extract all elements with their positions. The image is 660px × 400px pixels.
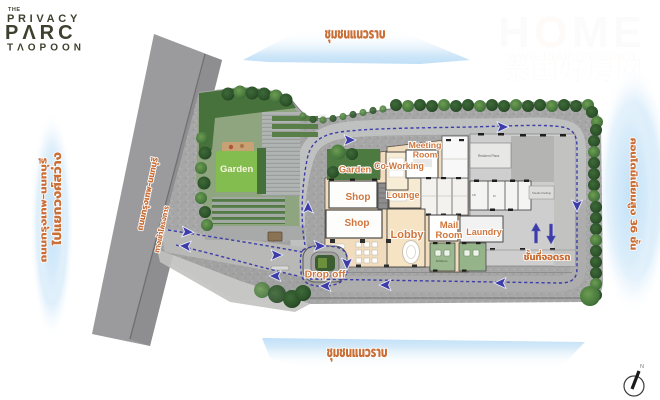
svg-text:Co-Working: Co-Working <box>374 161 424 171</box>
svg-text:Meeting: Meeting <box>409 140 442 150</box>
svg-text:Shop: Shop <box>346 192 371 203</box>
svg-text:LB: LB <box>472 193 476 197</box>
svg-text:Drop off: Drop off <box>305 269 346 281</box>
svg-text:PΛRC: PΛRC <box>5 22 77 44</box>
svg-text:Lobby: Lobby <box>391 229 425 241</box>
svg-text:Lounge: Lounge <box>386 190 419 200</box>
svg-text:Resident Place: Resident Place <box>478 154 500 158</box>
svg-text:TΛOPOON: TΛOPOON <box>7 43 85 54</box>
svg-text:M Room: M Room <box>436 259 448 263</box>
svg-text:N: N <box>640 364 644 370</box>
svg-text:Laundry: Laundry <box>466 227 502 237</box>
svg-text:Shop: Shop <box>345 218 370 229</box>
svg-text:Shuttle Parking: Shuttle Parking <box>532 191 551 195</box>
svg-text:Room: Room <box>413 150 438 160</box>
svg-text:Room: Room <box>436 230 463 241</box>
svg-text:Garden: Garden <box>339 165 372 175</box>
svg-text:Garden: Garden <box>220 164 253 175</box>
